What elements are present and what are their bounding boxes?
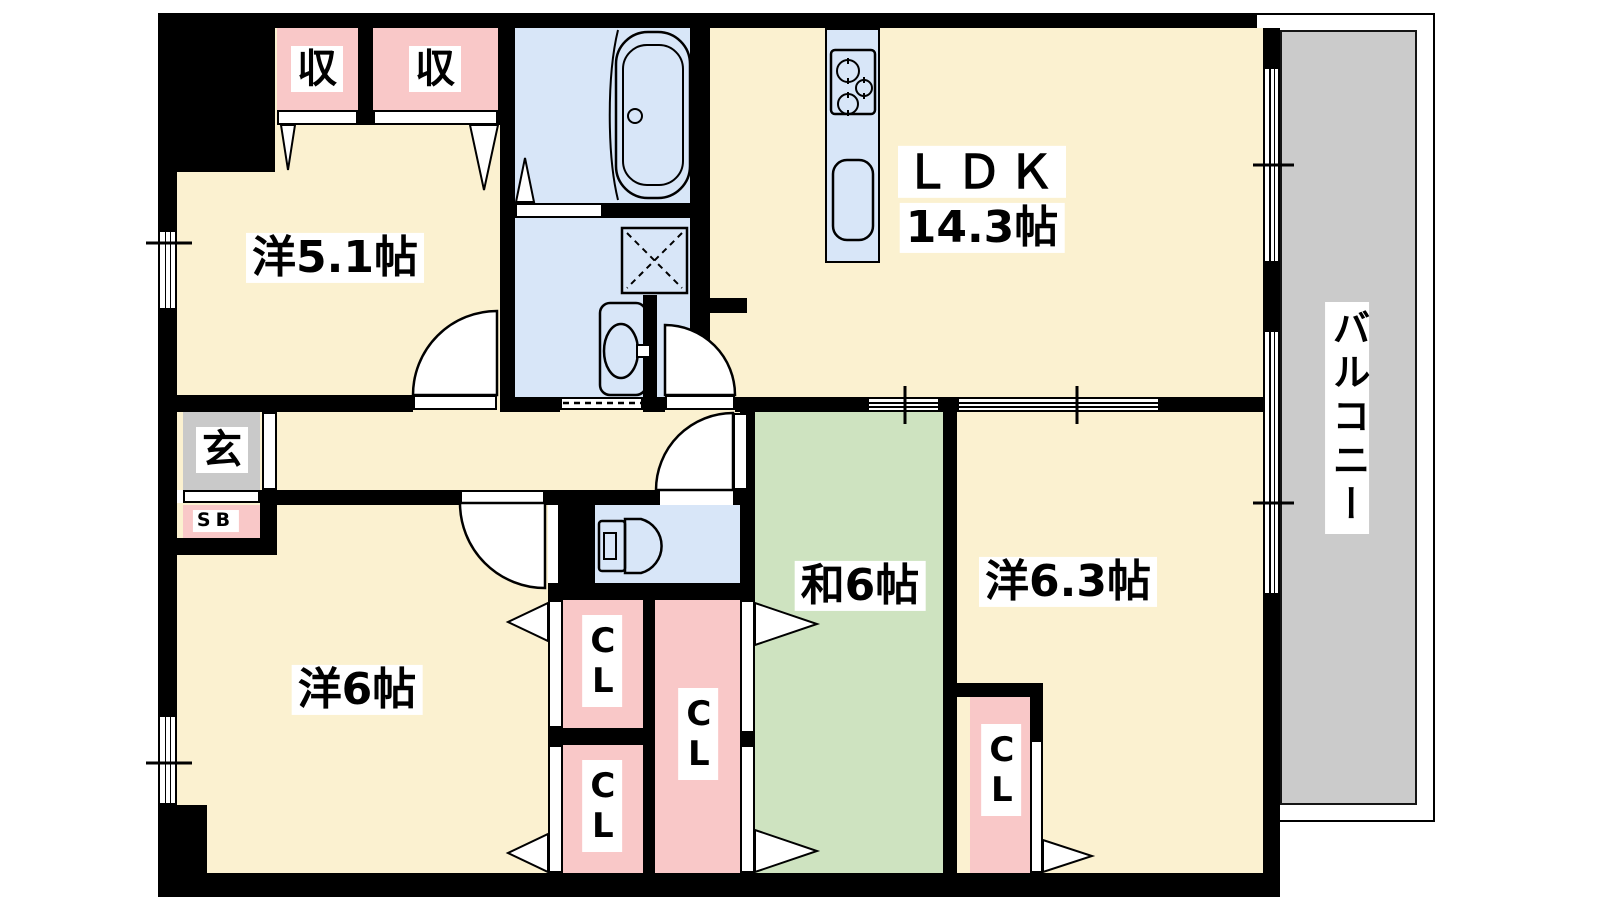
door-leaf-western-5-1 [413,395,497,410]
door-leaf-toilet [733,413,748,490]
wall [260,490,277,555]
wall [545,490,558,505]
entrance-label: 玄 [196,427,248,473]
room-label-western-6: 洋6帖 [292,665,423,715]
wall-closet-east-top [957,683,1043,697]
sliding-door-washroom [560,397,643,410]
shoe-box-label: SB [193,510,239,532]
closet-label-west-top: CL [582,615,622,707]
wall [500,397,560,412]
wall-toilet-top [558,490,660,505]
room-size-ldk: 14.3帖 [900,203,1065,253]
kitchen-counter [825,28,880,263]
wall-bath-right [690,28,710,397]
closet-door-west-bottom [548,745,563,873]
room-label-japanese-6: 和6帖 [795,561,926,611]
room-label-western-6-3: 洋6.3帖 [979,557,1157,607]
wall-closet-divider [643,600,655,873]
floor-toilet [595,505,740,585]
wall [643,397,665,412]
closet-label-oshiire-right: 収 [409,46,461,92]
closet-door-east-bottom [740,745,755,873]
closet-label-oshiire-left: 収 [291,46,343,92]
wall-corner-block-tl [158,13,275,172]
sliding-door-oshiire-right [373,110,498,125]
closet-label-east: CL [981,724,1021,816]
closet-label-center: CL [678,688,718,780]
wall-bath-left [500,28,515,412]
sliding-door-oshiire-left [277,110,358,125]
window-balcony-lower [1263,330,1280,595]
wall [740,733,755,745]
closet-door-west-top [548,600,563,728]
closet-label-west-bottom: CL [582,760,622,852]
sliding-partition-west63 [957,397,1160,412]
wall-top [158,13,1255,28]
wall-bottom [158,873,1280,897]
folding-door-bath [515,203,603,218]
wall [358,28,373,125]
closet-door-east-top [740,600,755,733]
wall-tatami-west63 [943,397,957,873]
wall-stub [695,298,747,313]
floor-plan: 収 収 洋5.1帖 ＬＤＫ 14.3帖 玄 SB 洋6帖 和6帖 洋6.3帖 C… [0,0,1600,900]
entrance-step [183,490,260,503]
floor-japanese-6 [755,410,943,873]
window-left-upper [158,230,177,310]
wall-closet-mid [548,728,643,745]
door-leaf-western-6 [460,490,545,505]
sliding-partition-tatami [867,397,940,412]
wall-corner-block-bl [158,805,207,873]
door-leaf-ldk [665,395,735,410]
entrance-door [262,412,277,490]
wall [262,490,460,505]
floor-bath-wash [515,28,692,412]
wall-bath-wash-divider [603,203,690,218]
wall-closet-east-right [1030,697,1043,740]
room-label-ldk: ＬＤＫ [898,146,1066,198]
window-balcony-upper [1263,67,1280,263]
room-label-balcony: バルコニー [1325,302,1369,534]
wall-vanity-right [643,295,657,397]
window-left-lower [158,715,177,805]
wall [1160,397,1263,412]
closet-door-east63 [1030,740,1043,873]
wall-hall-top [177,395,413,412]
wall-toilet-bottom [548,583,755,600]
room-label-western-5-1: 洋5.1帖 [246,233,424,283]
wall-ldk-bottom [735,397,867,412]
wall-toilet-left [558,505,595,585]
